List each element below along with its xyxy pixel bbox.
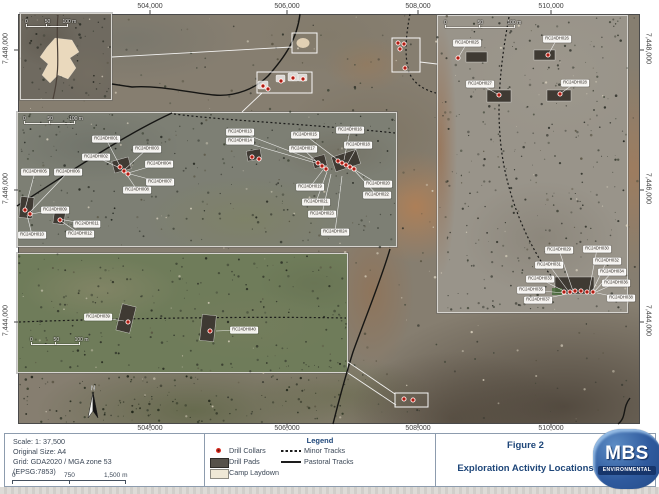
drill-hole-label: RC24DH024 — [321, 229, 349, 236]
grid-coordinate-top: 508,000 — [388, 3, 448, 10]
inset-scale-label: 100 m — [62, 19, 76, 25]
scale-bar-start: 0 — [12, 472, 16, 479]
drill-hole-label: RC24DH035 — [517, 287, 545, 294]
drill-hole-label: RC24DH026 — [543, 36, 571, 43]
drill-hole-label: RC24DH012 — [66, 231, 94, 238]
mbs-environmental-logo: MBS ENVIRONMENTAL — [593, 429, 659, 489]
drill-hole-label: RC24DH007 — [146, 179, 174, 186]
inset-scale-bar: 050100 m — [30, 337, 92, 347]
original-size-text: Original Size: A4 — [13, 447, 66, 456]
drill-hole-label: RC24DH015 — [291, 132, 319, 139]
drill-hole-label: RC24DH001 — [92, 136, 120, 143]
drill-hole-label: RC24DH019 — [296, 184, 324, 191]
drill-hole-label: RC24DH033 — [526, 276, 554, 283]
drill-hole-label: RC24DH017 — [289, 146, 317, 153]
drill-hole-label: RC24DH038 — [607, 295, 635, 302]
figure-number: Figure 2 — [436, 440, 615, 451]
minor-tracks-symbol — [281, 450, 301, 452]
drill-hole-label: RC24DH023 — [308, 211, 336, 218]
legend-drill-pads-label: Drill Pads — [229, 457, 260, 466]
grid-coordinate-bottom: 510,000 — [521, 425, 581, 432]
drill-hole-label: RC24DH021 — [302, 199, 330, 206]
figure-page: N Scale: 1: 37,500 Original Size: A4 Gri… — [0, 0, 659, 494]
drill-collar-symbol — [216, 448, 221, 453]
grid-coordinate-left: 7,444,000 — [3, 291, 10, 351]
grid-coordinate-bottom: 504,000 — [120, 425, 180, 432]
logo-subtext: ENVIRONMENTAL — [598, 466, 656, 475]
grid-coordinate-bottom: 508,000 — [388, 425, 448, 432]
drill-hole-label: RC24DH014 — [226, 138, 254, 145]
grid-coordinate-top: 510,000 — [521, 3, 581, 10]
legend-minor-tracks-label: Minor Tracks — [304, 446, 345, 455]
drill-hole-label: RC24DH030 — [583, 246, 611, 253]
inset-scale-label: 100 m — [69, 116, 83, 122]
inset-scale-bar: 050100 m — [444, 20, 532, 30]
drill-hole-label: RC24DH005 — [21, 169, 49, 176]
drill-hole-label: RC24DH009 — [41, 207, 69, 214]
legend: Legend Drill Collars Drill Pads Camp Lay… — [204, 433, 436, 487]
grid-coordinate-right: 7,448,000 — [645, 19, 652, 79]
drill-hole-label: RC24DH028 — [561, 80, 589, 87]
drill-hole-label: RC24DH022 — [363, 192, 391, 199]
legend-pastoral-tracks-label: Pastoral Tracks — [304, 457, 354, 466]
drill-hole-label: RC24DH011 — [73, 221, 100, 228]
drill-hole-label: RC24DH029 — [545, 247, 573, 254]
inset-scale-bar: 050100 m — [25, 19, 77, 29]
grid-coordinate-top: 506,000 — [257, 3, 317, 10]
drill-hole-label: RC24DH039 — [84, 314, 112, 321]
drill-hole-label: RC24DH006 — [54, 169, 82, 176]
drill-hole-label: RC24DH031 — [535, 262, 563, 269]
drill-hole-label: RC24DH016 — [336, 127, 364, 134]
drill-hole-label: RC24DH004 — [145, 161, 173, 168]
grid-text: Grid: GDA2020 / MGA zone 53 — [13, 457, 112, 466]
grid-coordinate-left: 7,446,000 — [3, 159, 10, 219]
grid-coordinate-right: 7,444,000 — [645, 291, 652, 351]
drill-hole-label: RC24DH010 — [18, 232, 46, 239]
grid-coordinate-top: 504,000 — [120, 3, 180, 10]
grid-coordinate-bottom: 506,000 — [257, 425, 317, 432]
scale-bar-mid: 750 — [64, 472, 75, 479]
drill-hole-label: RC24DH037 — [524, 297, 552, 304]
logo-text: MBS — [593, 443, 659, 465]
legend-drill-collars-label: Drill Collars — [229, 446, 266, 455]
pastoral-tracks-symbol — [281, 461, 301, 463]
drill-hole-label: RC24DH008 — [123, 187, 151, 194]
legend-camp-laydown-label: Camp Laydown — [229, 468, 279, 477]
drill-hole-label: RC24DH040 — [230, 327, 258, 334]
camp-laydown-symbol — [210, 469, 229, 479]
drill-hole-label: RC24DH032 — [593, 258, 621, 265]
legend-title: Legend — [205, 436, 435, 445]
inset-scale-bar: 050100 m — [23, 116, 87, 126]
epsg-text: (EPSG:7853) — [13, 467, 56, 476]
grid-coordinate-right: 7,446,000 — [645, 159, 652, 219]
grid-coordinate-left: 7,448,000 — [3, 19, 10, 79]
drill-hole-label: RC24DH003 — [133, 146, 161, 153]
drill-hole-label: RC24DH025 — [453, 40, 481, 47]
drill-hole-label: RC24DH013 — [226, 129, 254, 136]
drill-hole-label: RC24DH018 — [344, 142, 372, 149]
drill-hole-label: RC24DH020 — [364, 181, 392, 188]
inset-map-south-drilling — [17, 253, 348, 373]
figure-title: Exploration Activity Locations — [436, 463, 615, 474]
scale-bar-end: 1,500 m — [104, 472, 128, 479]
drill-hole-label: RC24DH027 — [466, 81, 494, 88]
scale-text: Scale: 1: 37,500 — [13, 437, 65, 446]
drill-pad-symbol — [210, 458, 229, 468]
page-edge-strip — [0, 487, 659, 494]
drill-hole-label: RC24DH034 — [598, 269, 626, 276]
drill-hole-label: RC24DH036 — [602, 280, 630, 287]
inset-scale-label: 100 m — [75, 337, 89, 343]
drill-hole-label: RC24DH002 — [82, 154, 110, 161]
